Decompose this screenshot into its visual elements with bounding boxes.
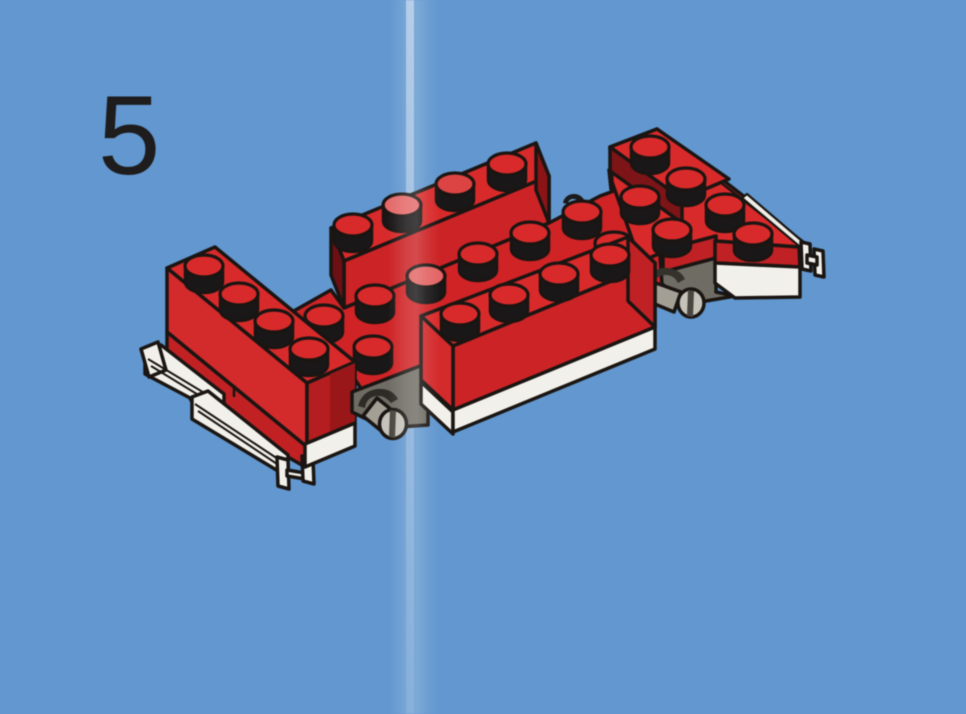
svg-text:5: 5 [98, 73, 160, 198]
